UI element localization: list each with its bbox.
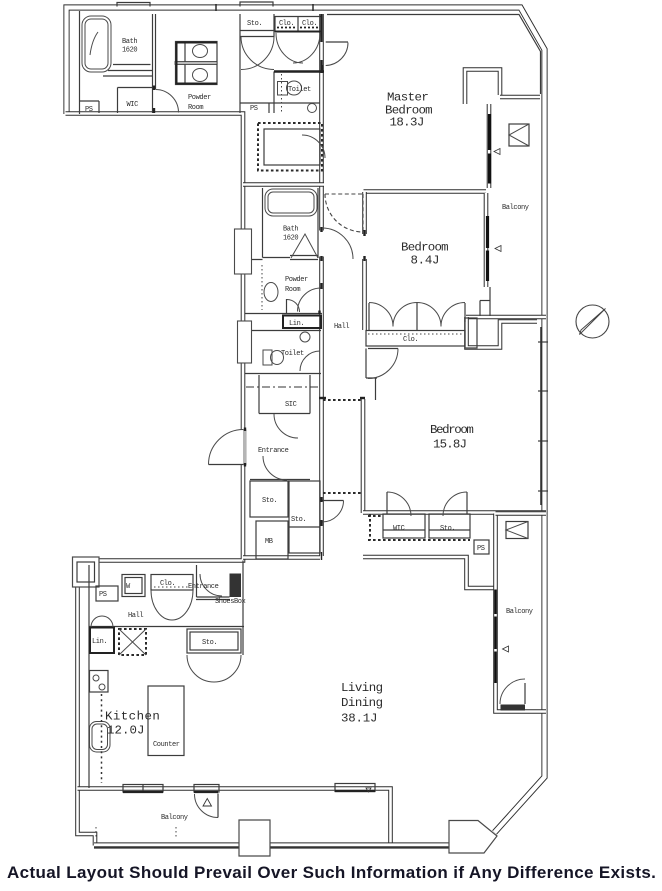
svg-text:Balcony: Balcony bbox=[161, 814, 188, 822]
svg-text:38.1J: 38.1J bbox=[341, 712, 377, 726]
svg-text:1620: 1620 bbox=[122, 47, 137, 55]
svg-text:Toilet: Toilet bbox=[281, 350, 304, 358]
svg-text:Bedroom: Bedroom bbox=[401, 241, 448, 255]
svg-text:Powder: Powder bbox=[285, 276, 308, 284]
svg-text:Clo.: Clo. bbox=[403, 336, 418, 344]
svg-text:Lin.: Lin. bbox=[289, 320, 304, 328]
svg-text:1620: 1620 bbox=[283, 235, 298, 243]
svg-text:Sto.: Sto. bbox=[291, 516, 306, 524]
svg-text:Kitchen: Kitchen bbox=[105, 710, 160, 724]
svg-text:WIC: WIC bbox=[393, 525, 405, 533]
svg-text:Clo.: Clo. bbox=[160, 580, 175, 588]
svg-text:PS: PS bbox=[477, 545, 485, 553]
svg-text:Actual Layout Should Prevail O: Actual Layout Should Prevail Over Such I… bbox=[7, 863, 656, 882]
svg-text:Clo.: Clo. bbox=[302, 20, 317, 28]
svg-text:Powder: Powder bbox=[188, 94, 211, 102]
svg-text:Sto.: Sto. bbox=[262, 497, 277, 505]
svg-text:Entrance: Entrance bbox=[258, 447, 289, 455]
svg-text:MB: MB bbox=[265, 538, 273, 546]
svg-text:Balcony: Balcony bbox=[506, 608, 533, 616]
svg-text:Dining: Dining bbox=[341, 696, 383, 710]
svg-text:Clo.: Clo. bbox=[279, 20, 294, 28]
svg-text:Bath: Bath bbox=[283, 226, 298, 234]
svg-text:Bedroom: Bedroom bbox=[430, 423, 473, 437]
svg-text:Sto.: Sto. bbox=[247, 20, 262, 28]
svg-text:PS: PS bbox=[250, 105, 258, 113]
svg-text:Sto.: Sto. bbox=[440, 525, 455, 533]
svg-text:Master: Master bbox=[387, 91, 428, 105]
svg-text:Hall: Hall bbox=[128, 612, 143, 620]
svg-text:WIC: WIC bbox=[127, 101, 139, 109]
svg-text:Room: Room bbox=[188, 104, 203, 112]
svg-text:Entrance: Entrance bbox=[188, 583, 219, 591]
svg-text:15.8J: 15.8J bbox=[433, 438, 466, 452]
svg-text:18.3J: 18.3J bbox=[390, 116, 424, 130]
svg-text:ShoesBox: ShoesBox bbox=[215, 598, 246, 606]
svg-text:Hall: Hall bbox=[334, 323, 349, 331]
svg-text:Living: Living bbox=[341, 681, 383, 695]
svg-text:PS: PS bbox=[99, 591, 107, 599]
svg-text:Sto.: Sto. bbox=[202, 639, 217, 647]
svg-text:SIC: SIC bbox=[285, 401, 297, 409]
svg-text:Lin.: Lin. bbox=[92, 638, 107, 646]
svg-text:Counter: Counter bbox=[153, 741, 180, 749]
svg-text:Bath: Bath bbox=[122, 38, 137, 46]
svg-text:Room: Room bbox=[285, 286, 300, 294]
svg-text:Balcony: Balcony bbox=[502, 204, 529, 212]
svg-text:8.4J: 8.4J bbox=[411, 254, 440, 268]
svg-text:12.0J: 12.0J bbox=[107, 724, 144, 738]
svg-text:PS: PS bbox=[85, 106, 93, 114]
svg-text:Toilet: Toilet bbox=[288, 86, 311, 94]
